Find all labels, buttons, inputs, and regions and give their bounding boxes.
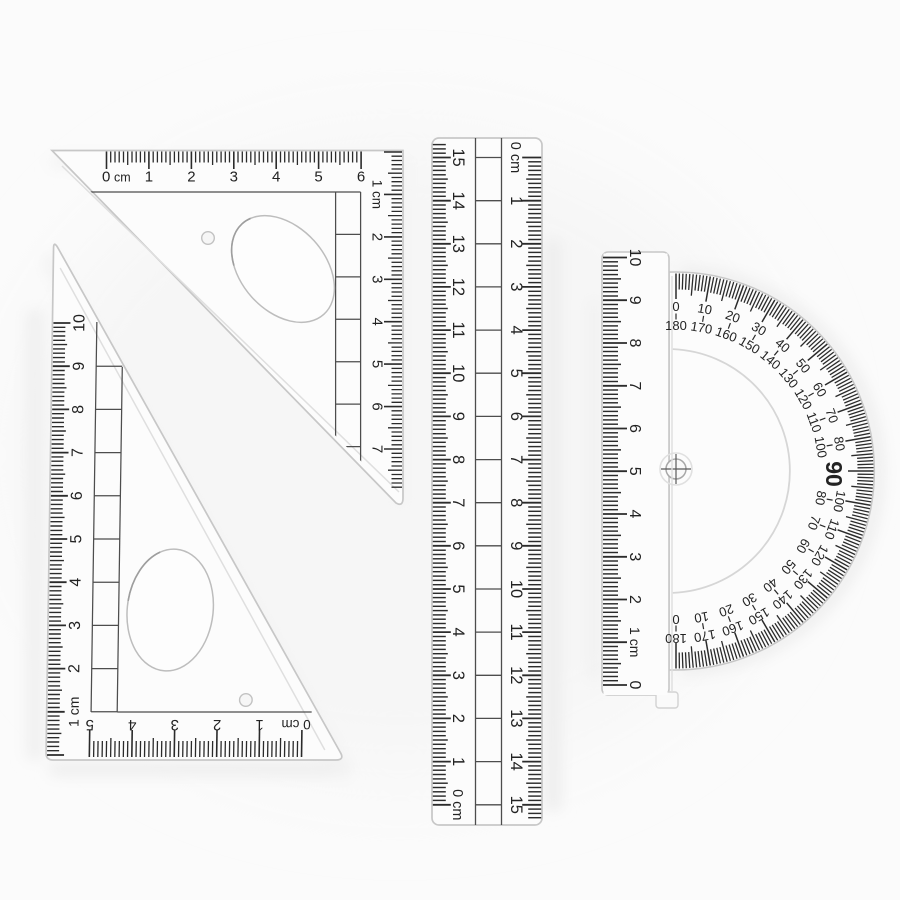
svg-text:11: 11	[449, 322, 467, 339]
svg-text:4: 4	[272, 169, 280, 186]
svg-text:5: 5	[449, 584, 467, 593]
svg-text:12: 12	[507, 666, 525, 684]
svg-text:6: 6	[69, 491, 86, 500]
svg-text:7: 7	[449, 498, 467, 507]
svg-text:13: 13	[507, 709, 525, 727]
svg-text:5: 5	[626, 467, 643, 476]
svg-text:2: 2	[449, 714, 467, 723]
svg-text:2: 2	[507, 239, 525, 248]
svg-text:1 cm: 1 cm	[627, 627, 643, 657]
svg-text:3: 3	[67, 621, 84, 630]
svg-text:3: 3	[369, 275, 386, 283]
svg-text:cm: cm	[114, 171, 131, 185]
svg-text:8: 8	[449, 455, 467, 464]
svg-text:2: 2	[213, 716, 222, 733]
svg-text:80: 80	[831, 435, 848, 452]
svg-text:3: 3	[507, 282, 525, 291]
svg-text:13: 13	[449, 235, 467, 253]
svg-text:10: 10	[71, 314, 88, 332]
svg-text:5: 5	[85, 716, 94, 733]
svg-text:10: 10	[626, 249, 643, 267]
svg-text:1: 1	[449, 757, 467, 766]
svg-text:9: 9	[626, 296, 643, 305]
svg-text:4: 4	[626, 510, 643, 519]
svg-text:80: 80	[812, 490, 829, 507]
svg-text:4: 4	[68, 578, 85, 587]
svg-text:12: 12	[449, 278, 467, 296]
svg-text:8: 8	[507, 498, 525, 507]
svg-text:180: 180	[665, 318, 687, 333]
svg-text:2: 2	[369, 233, 386, 241]
svg-text:3: 3	[626, 552, 643, 561]
svg-text:5: 5	[507, 369, 525, 378]
svg-text:0 cm: 0 cm	[449, 789, 465, 820]
svg-text:6: 6	[507, 412, 525, 421]
svg-text:3: 3	[449, 671, 467, 680]
svg-text:1 cm: 1 cm	[65, 697, 81, 727]
svg-text:6: 6	[449, 541, 467, 550]
svg-text:7: 7	[369, 445, 386, 453]
svg-text:1: 1	[507, 196, 525, 205]
svg-text:5: 5	[314, 169, 322, 186]
svg-text:4: 4	[507, 326, 525, 335]
svg-text:6: 6	[369, 402, 386, 410]
svg-text:4: 4	[369, 318, 386, 326]
svg-text:7: 7	[626, 381, 643, 390]
svg-text:6: 6	[626, 424, 643, 433]
svg-text:8: 8	[70, 405, 87, 414]
svg-text:5: 5	[68, 534, 85, 543]
svg-text:10: 10	[696, 300, 713, 317]
svg-text:0: 0	[672, 612, 679, 627]
svg-text:9: 9	[449, 412, 467, 421]
svg-text:6: 6	[357, 169, 365, 186]
svg-text:180: 180	[665, 631, 687, 646]
svg-text:15: 15	[507, 796, 525, 814]
svg-text:4: 4	[449, 628, 467, 637]
svg-text:14: 14	[449, 192, 467, 210]
svg-text:1: 1	[145, 169, 153, 186]
svg-text:0: 0	[672, 299, 679, 314]
svg-text:3: 3	[170, 716, 179, 733]
svg-text:5: 5	[369, 360, 386, 368]
svg-text:1: 1	[255, 716, 264, 733]
svg-text:15: 15	[449, 148, 467, 166]
svg-text:7: 7	[507, 455, 525, 464]
svg-text:9: 9	[507, 541, 525, 550]
svg-text:7: 7	[69, 448, 86, 457]
svg-text:10: 10	[449, 364, 467, 382]
svg-text:8: 8	[626, 339, 643, 348]
svg-text:2: 2	[66, 664, 83, 673]
svg-text:14: 14	[507, 752, 525, 770]
svg-text:11: 11	[507, 624, 525, 641]
svg-text:4: 4	[128, 716, 137, 733]
svg-text:0 cm: 0 cm	[507, 142, 523, 173]
svg-text:1 cm: 1 cm	[370, 180, 385, 209]
svg-text:0 cm: 0 cm	[281, 717, 310, 732]
svg-text:10: 10	[693, 609, 710, 626]
svg-text:0: 0	[626, 681, 643, 690]
svg-text:2: 2	[187, 169, 195, 186]
svg-text:10: 10	[507, 580, 525, 598]
svg-text:2: 2	[626, 595, 643, 604]
svg-text:9: 9	[71, 362, 88, 371]
svg-text:3: 3	[230, 169, 238, 186]
svg-text:90: 90	[821, 461, 847, 487]
svg-text:0: 0	[102, 169, 110, 186]
